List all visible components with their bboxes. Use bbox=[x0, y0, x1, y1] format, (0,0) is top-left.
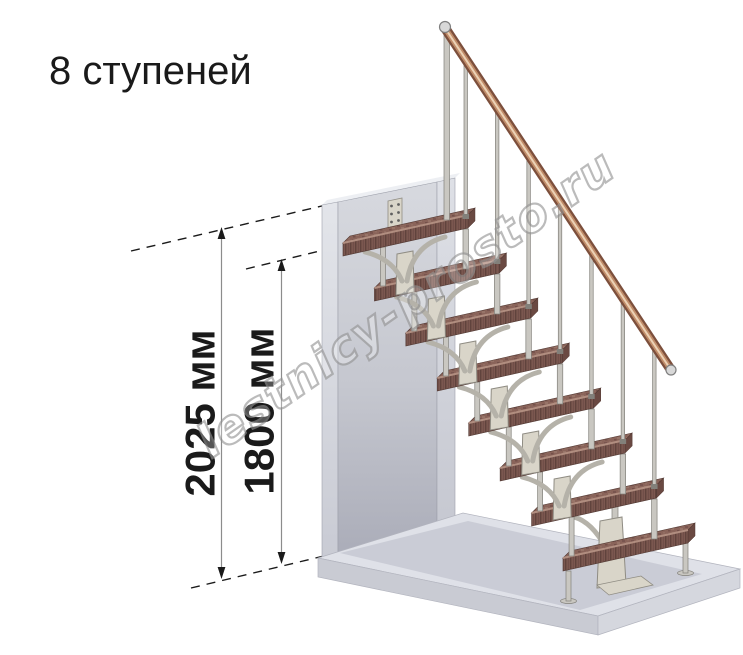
tread-spacer-post bbox=[443, 337, 448, 376]
handrail-top-cap bbox=[440, 22, 451, 33]
baluster-collar bbox=[557, 349, 564, 354]
datum-line-upper-floor bbox=[131, 205, 326, 251]
page-title: 8 ступеней bbox=[49, 49, 252, 93]
tread-spacer-post bbox=[506, 427, 511, 466]
tread-spacer-post bbox=[475, 382, 480, 421]
baluster-collar bbox=[588, 394, 595, 399]
tread-spacer-post bbox=[538, 472, 543, 511]
tread-spacer-post bbox=[380, 247, 385, 286]
stair-diagram-page: 2025 мм 1800 мм bbox=[0, 0, 743, 655]
arrow-down-icon bbox=[218, 567, 226, 579]
handrail-top-post bbox=[444, 33, 450, 220]
tread-end-post bbox=[557, 364, 563, 404]
arrow-down-icon bbox=[278, 552, 286, 564]
baluster-collar bbox=[525, 304, 532, 309]
tread-leg bbox=[683, 543, 688, 573]
tread-end-post bbox=[652, 499, 658, 539]
tread-end-post bbox=[589, 409, 595, 449]
arrow-up-icon bbox=[218, 227, 226, 239]
baluster bbox=[464, 60, 468, 217]
tread-end-post bbox=[494, 274, 500, 314]
datum-line-floor bbox=[191, 554, 332, 588]
baluster bbox=[590, 252, 594, 397]
baluster-collar bbox=[651, 484, 658, 489]
tread-end-post bbox=[526, 319, 532, 359]
handrail-bottom-cap bbox=[666, 365, 676, 375]
baluster-collar bbox=[620, 439, 627, 444]
baluster-collar bbox=[462, 214, 469, 219]
tread-spacer-post bbox=[569, 517, 574, 556]
stair-diagram-canvas: 2025 мм 1800 мм bbox=[0, 0, 743, 655]
tread-end-post bbox=[620, 454, 626, 494]
baluster bbox=[621, 300, 625, 442]
tread-leg bbox=[566, 571, 571, 601]
baluster bbox=[653, 348, 657, 487]
